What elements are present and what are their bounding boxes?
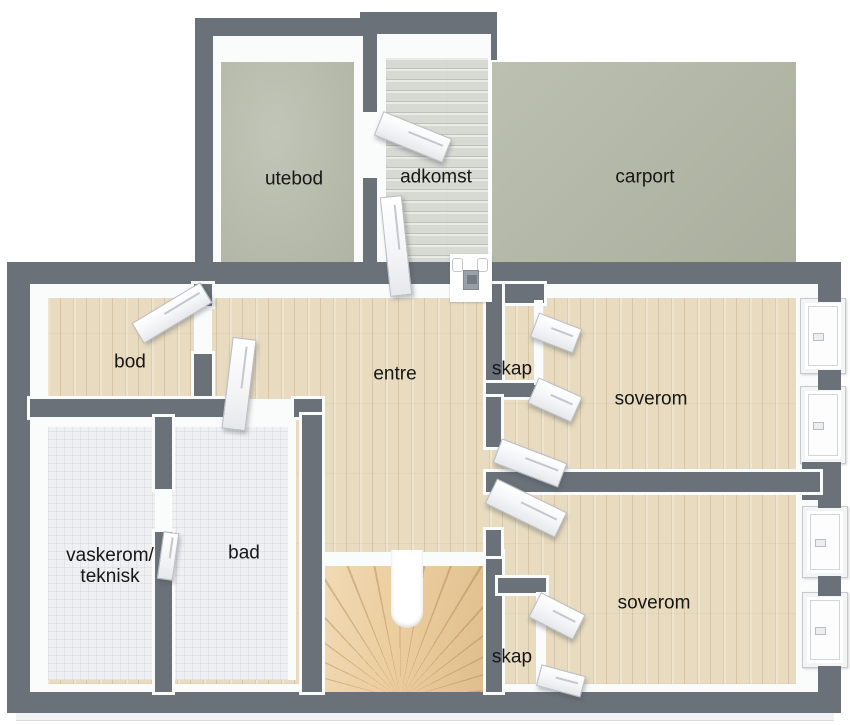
vaskerom-doorway	[155, 489, 172, 532]
label-bad: bad	[228, 543, 260, 564]
window-soverom-lower-2	[802, 592, 848, 668]
east-wall-seg-1	[818, 262, 841, 302]
bod-doorway	[194, 306, 212, 354]
label-soverom-upper: soverom	[615, 389, 688, 410]
north-wall-right	[490, 262, 841, 284]
foundation-slab-edge	[16, 713, 834, 721]
window-glass	[808, 394, 838, 456]
bad-east-wall	[302, 415, 322, 692]
utebod-floor	[221, 62, 354, 266]
label-utebod: utebod	[265, 169, 323, 190]
north-wall-left	[7, 262, 452, 284]
window-glass	[808, 306, 838, 366]
vaskerom-bad-divider-upper	[155, 417, 172, 489]
east-wall-seg-4	[818, 576, 841, 596]
corridor-wall-upper	[486, 397, 501, 447]
window-glass	[810, 600, 840, 660]
corridor-wall-lower	[486, 530, 501, 556]
utebod-wall-left	[195, 18, 215, 284]
south-wall	[7, 692, 841, 713]
label-vaskerom-line1: vaskerom/	[66, 545, 154, 566]
label-bod: bod	[114, 352, 146, 373]
adkomst-wall-top	[360, 12, 497, 34]
label-vaskerom: vaskerom/ teknisk	[66, 545, 154, 587]
floor-plan: utebod adkomst carport bod entre skap so…	[0, 0, 850, 725]
laundry-north-wall	[30, 399, 230, 417]
label-skap-lower: skap	[492, 647, 532, 668]
east-wall-seg-5	[818, 666, 841, 713]
entry-door-lock	[463, 270, 479, 290]
label-vaskerom-line2: teknisk	[66, 566, 154, 587]
label-soverom-lower: soverom	[618, 593, 691, 614]
stairs-east-wall	[486, 552, 502, 692]
east-wall-seg-2	[818, 370, 841, 390]
window-soverom-lower-1	[802, 506, 848, 578]
window-soverom-upper-1	[800, 298, 846, 374]
label-skap-upper: skap	[492, 359, 532, 380]
east-wall-seg-3	[818, 462, 841, 508]
carport-slab	[492, 62, 796, 262]
label-carport: carport	[615, 167, 674, 188]
label-entre: entre	[373, 364, 416, 385]
front-entrance	[450, 254, 492, 302]
skap-lower-top-wall	[498, 578, 546, 593]
west-wall	[7, 262, 30, 713]
label-adkomst: adkomst	[400, 167, 472, 188]
entry-door-jamb-left	[452, 258, 463, 272]
stairs-well-notch	[391, 550, 423, 628]
bod-entre-wall-lower	[194, 354, 212, 404]
window-soverom-upper-2	[800, 386, 846, 464]
window-glass	[810, 514, 840, 570]
entry-door-lock-core	[467, 275, 477, 284]
